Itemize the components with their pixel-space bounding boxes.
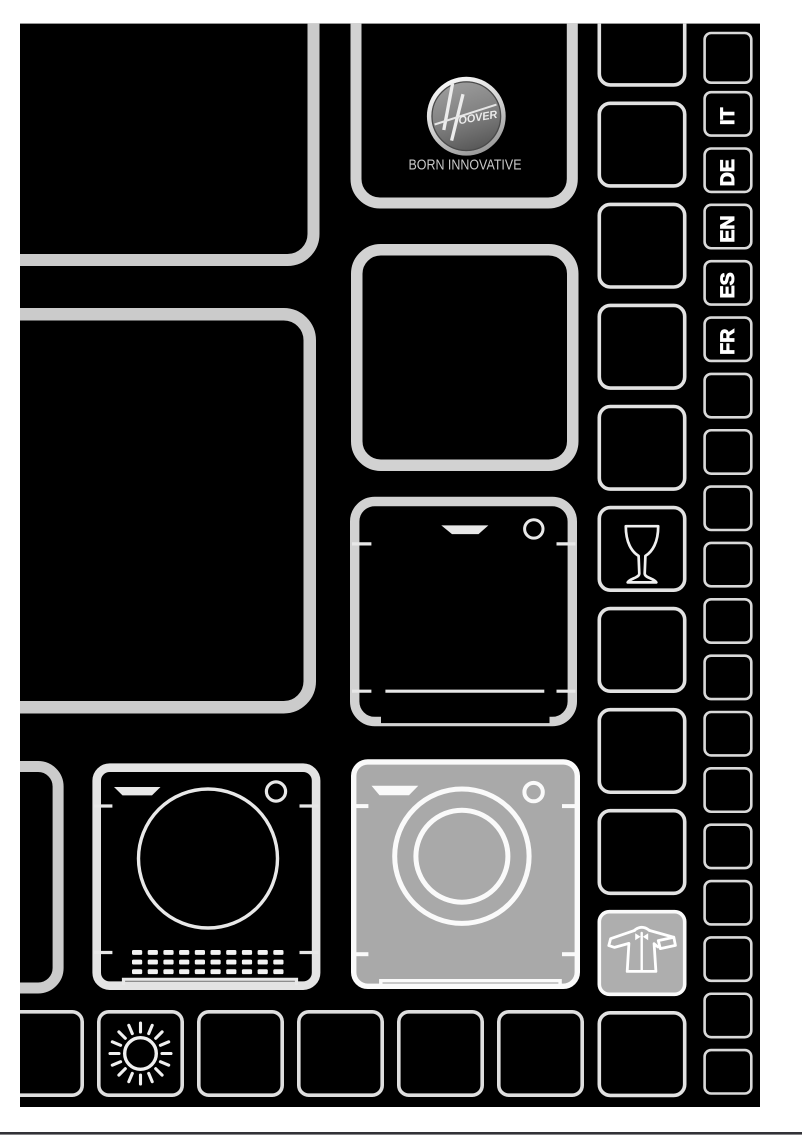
svg-text:ES: ES — [717, 272, 739, 298]
svg-text:IT: IT — [717, 108, 739, 125]
svg-text:BORN INNOVATIVE: BORN INNOVATIVE — [409, 158, 522, 174]
svg-text:DE: DE — [717, 159, 739, 186]
svg-text:FR: FR — [717, 329, 739, 355]
svg-text:EN: EN — [717, 216, 739, 243]
